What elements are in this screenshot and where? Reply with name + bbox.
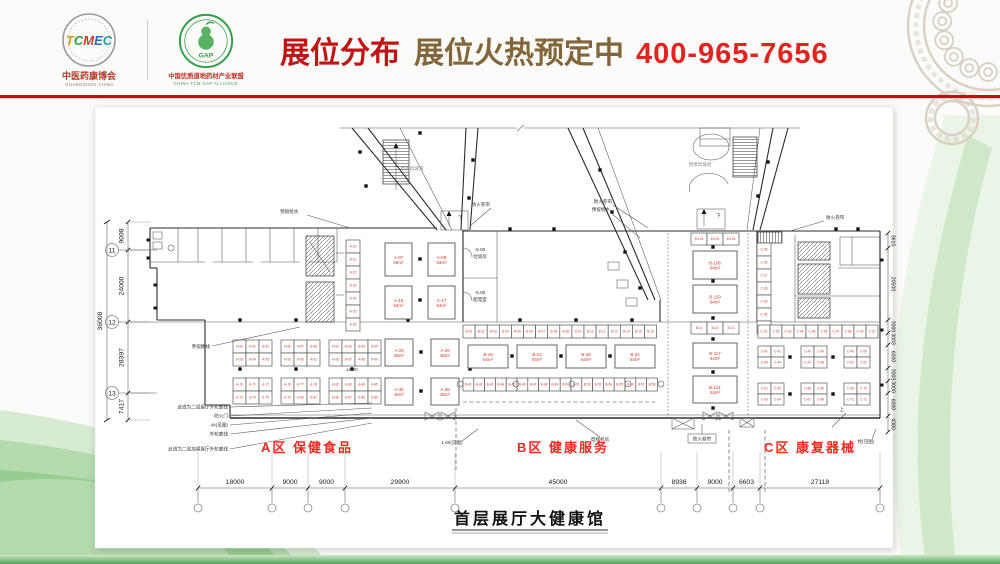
svg-text:A-69: A-69 xyxy=(371,358,378,362)
svg-text:B-11: B-11 xyxy=(696,326,703,330)
svg-text:C-62: C-62 xyxy=(774,387,781,391)
svg-text:-5.00: -5.00 xyxy=(475,290,486,295)
svg-text:11: 11 xyxy=(108,247,115,254)
svg-text:12: 12 xyxy=(108,319,116,326)
svg-text:A-66: A-66 xyxy=(332,358,339,362)
header-rule-shadow xyxy=(0,98,1000,99)
svg-text:B-43: B-43 xyxy=(487,383,494,387)
svg-text:A-82: A-82 xyxy=(332,383,339,387)
svg-text:A-57: A-57 xyxy=(297,345,304,349)
svg-text:C-10: C-10 xyxy=(869,330,876,334)
svg-text:28397: 28397 xyxy=(119,348,126,367)
svg-text:B-11: B-11 xyxy=(587,330,594,334)
svg-text:6000: 6000 xyxy=(890,351,896,363)
svg-text:C-72: C-72 xyxy=(860,398,867,402)
svg-text:防火卷帘: 防火卷帘 xyxy=(472,201,491,208)
svg-text:C-04: C-04 xyxy=(797,330,804,334)
svg-text:A-85: A-85 xyxy=(371,383,378,387)
svg-text:B-13: B-13 xyxy=(611,330,618,334)
svg-text:C-63: C-63 xyxy=(761,398,768,402)
svg-text:B-02: B-02 xyxy=(478,330,485,334)
svg-text:C-25: C-25 xyxy=(761,248,768,252)
logo-tcmec-name: 中医药康博会 xyxy=(62,69,116,82)
header-titles: 展位分布 展位火热预定中 400-965-7656 xyxy=(280,28,829,72)
svg-text:A-23: A-23 xyxy=(350,284,357,288)
svg-text:84m²: 84m² xyxy=(710,266,721,271)
svg-text:B-50: B-50 xyxy=(562,383,569,387)
svg-text:A-22: A-22 xyxy=(350,271,357,275)
svg-text:A-52: A-52 xyxy=(262,345,269,349)
svg-text:B-41: B-41 xyxy=(465,383,472,387)
svg-text:A-60: A-60 xyxy=(297,358,304,362)
svg-text:27118: 27118 xyxy=(811,479,830,486)
svg-text:A-73: A-73 xyxy=(236,396,243,400)
svg-text:A-81: A-81 xyxy=(310,396,317,400)
svg-text:±0.00: ±0.00 xyxy=(346,367,358,372)
svg-text:A-68: A-68 xyxy=(358,358,365,362)
svg-text:C-26: C-26 xyxy=(761,261,768,265)
page-title: 展位分布 xyxy=(280,28,400,72)
svg-text:B-05: B-05 xyxy=(514,330,521,334)
svg-text:A-67: A-67 xyxy=(345,358,352,362)
svg-text:A-79: A-79 xyxy=(284,396,291,400)
svg-text:36m²: 36m² xyxy=(394,392,405,397)
logo-gap-sub: CHINA TCM GAP ALLIANCE xyxy=(174,81,238,86)
svg-text:GAP: GAP xyxy=(199,52,214,59)
svg-text:3610: 3610 xyxy=(890,235,896,247)
svg-text:9098: 9098 xyxy=(119,228,126,243)
svg-text:A-56: A-56 xyxy=(284,345,291,349)
header: TCMEC 中医药康博会 GUANGZHOU CHINA GAP 中国优质道地药… xyxy=(0,0,1000,95)
svg-text:参观路线: 参观路线 xyxy=(192,343,211,350)
svg-text:预留给水: 预留给水 xyxy=(592,206,611,213)
svg-text:7417: 7417 xyxy=(119,399,126,414)
svg-text:B-06: B-06 xyxy=(526,330,533,334)
svg-text:垃圾房: 垃圾房 xyxy=(473,253,487,260)
svg-text:原建筑坡道: 原建筑坡道 xyxy=(401,165,424,172)
svg-text:6603: 6603 xyxy=(739,479,754,486)
svg-text:A-89: A-89 xyxy=(371,396,378,400)
svg-text:36000: 36000 xyxy=(97,311,104,330)
svg-text:4380: 4380 xyxy=(890,418,896,430)
svg-text:栓(见图): 栓(见图) xyxy=(858,438,875,445)
svg-text:-5.00: -5.00 xyxy=(475,247,486,252)
svg-text:A-24: A-24 xyxy=(350,297,357,301)
svg-text:84m²: 84m² xyxy=(710,300,721,305)
svg-text:C-05: C-05 xyxy=(809,330,816,334)
svg-text:A-65: A-65 xyxy=(371,345,378,349)
svg-text:外轮廓线: 外轮廓线 xyxy=(210,431,229,438)
svg-text:C-65: C-65 xyxy=(804,387,811,391)
zone-b-label: B区 健康服务 xyxy=(517,440,609,455)
plan-title: 首层展厅大健康馆 xyxy=(454,509,606,528)
svg-text:6000: 6000 xyxy=(890,399,896,411)
gap-logo-icon: GAP xyxy=(177,12,235,70)
svg-text:C-45: C-45 xyxy=(804,350,811,354)
svg-text:B-03: B-03 xyxy=(490,330,497,334)
svg-text:C-02: C-02 xyxy=(773,330,780,334)
svg-text:54m²: 54m² xyxy=(710,356,721,361)
svg-text:C-30: C-30 xyxy=(761,313,768,317)
svg-text:B-09: B-09 xyxy=(562,330,569,334)
svg-text:A-88: A-88 xyxy=(358,396,365,400)
svg-text:A-80: A-80 xyxy=(297,396,304,400)
svg-text:B-102: B-102 xyxy=(711,237,720,241)
svg-text:A-76: A-76 xyxy=(284,383,291,387)
svg-text:C-29: C-29 xyxy=(761,300,768,304)
svg-text:B-46: B-46 xyxy=(519,383,526,387)
svg-text:防火卷帘: 防火卷帘 xyxy=(594,198,613,205)
svg-text:A-61: A-61 xyxy=(310,358,317,362)
svg-text:A-25: A-25 xyxy=(350,310,357,314)
svg-text:13: 13 xyxy=(108,390,116,397)
svg-text:A-71: A-71 xyxy=(249,383,256,387)
svg-text:C-43: C-43 xyxy=(761,361,768,365)
svg-text:A-58: A-58 xyxy=(310,345,317,349)
svg-text:A-20: A-20 xyxy=(350,245,357,249)
zone-c-label: C区 康复器械 xyxy=(764,440,856,455)
svg-text:9000: 9000 xyxy=(282,479,297,486)
svg-text:B-07: B-07 xyxy=(538,330,545,334)
svg-text:C-27: C-27 xyxy=(761,274,768,278)
svg-text:B-12: B-12 xyxy=(599,330,606,334)
svg-text:A-62: A-62 xyxy=(332,345,339,349)
svg-text:3003: 3003 xyxy=(890,369,896,381)
svg-text:TCMEC: TCMEC xyxy=(66,33,113,48)
svg-text:C-46: C-46 xyxy=(817,350,824,354)
svg-text:B-52: B-52 xyxy=(584,383,591,387)
svg-text:B-44: B-44 xyxy=(497,383,504,387)
svg-text:C-28: C-28 xyxy=(761,287,768,291)
svg-text:A-86: A-86 xyxy=(332,396,339,400)
svg-text:A-50: A-50 xyxy=(236,345,243,349)
svg-text:24000: 24000 xyxy=(119,276,126,295)
svg-text:B-13: B-13 xyxy=(728,326,735,330)
slide: TCMEC 中医药康博会 GUANGZHOU CHINA GAP 中国优质道地药… xyxy=(0,0,1000,564)
svg-text:防火卷帘: 防火卷帘 xyxy=(693,436,712,443)
svg-text:防火门: 防火门 xyxy=(214,413,228,420)
svg-text:C-64: C-64 xyxy=(774,398,781,402)
svg-text:此线为二层展厅外轮廓线: 此线为二层展厅外轮廓线 xyxy=(177,404,228,411)
svg-text:45000: 45000 xyxy=(549,479,568,486)
svg-text:B-54: B-54 xyxy=(605,383,612,387)
svg-text:A-64: A-64 xyxy=(358,345,365,349)
svg-text:B-103: B-103 xyxy=(727,237,736,241)
svg-text:54m²: 54m² xyxy=(532,357,543,362)
svg-text:B-53: B-53 xyxy=(595,383,602,387)
svg-text:B-42: B-42 xyxy=(476,383,483,387)
svg-text:54m²: 54m² xyxy=(710,390,721,395)
svg-text:C-07: C-07 xyxy=(833,330,840,334)
svg-text:B-101: B-101 xyxy=(695,237,704,241)
svg-text:C-01: C-01 xyxy=(761,330,768,334)
svg-text:A-59: A-59 xyxy=(284,358,291,362)
svg-text:B-14: B-14 xyxy=(623,330,630,334)
svg-text:C-67: C-67 xyxy=(804,398,811,402)
svg-text:配电室: 配电室 xyxy=(473,296,487,303)
svg-text:B-57: B-57 xyxy=(638,383,645,387)
svg-text:3000: 3000 xyxy=(890,321,896,333)
svg-text:C-48: C-48 xyxy=(817,361,824,365)
svg-text:B-04: B-04 xyxy=(502,330,509,334)
svg-text:C-61: C-61 xyxy=(761,387,768,391)
svg-text:29900: 29900 xyxy=(391,479,410,486)
svg-text:B-16: B-16 xyxy=(647,330,654,334)
svg-text:B-10: B-10 xyxy=(575,330,582,334)
svg-text:B-47: B-47 xyxy=(530,383,537,387)
svg-text:A-84: A-84 xyxy=(358,383,365,387)
logo-gap: GAP 中国优质道地药材产业联盟 CHINA TCM GAP ALLIANCE xyxy=(162,12,250,87)
svg-text:A-53: A-53 xyxy=(236,358,243,362)
logo-tcmec-sub: GUANGZHOU CHINA xyxy=(65,82,113,87)
svg-text:54m²: 54m² xyxy=(483,357,494,362)
svg-text:C-09: C-09 xyxy=(857,330,864,334)
svg-text:A-21: A-21 xyxy=(350,258,357,262)
svg-text:20500: 20500 xyxy=(890,277,896,292)
svg-text:3000: 3000 xyxy=(890,381,896,393)
svg-text:原建筑坡道: 原建筑坡道 xyxy=(689,161,712,168)
svg-text:B-01: B-01 xyxy=(466,330,473,334)
svg-text:A-78: A-78 xyxy=(310,383,317,387)
svg-text:9000: 9000 xyxy=(707,479,722,486)
svg-text:C-41: C-41 xyxy=(761,350,768,354)
svg-text:上: 上 xyxy=(840,406,845,412)
svg-text:A-26: A-26 xyxy=(350,323,357,327)
svg-text:C-44: C-44 xyxy=(774,361,781,365)
svg-text:A-54: A-54 xyxy=(249,358,256,362)
svg-text:36m²: 36m² xyxy=(440,353,451,358)
svg-text:C-42: C-42 xyxy=(774,350,781,354)
svg-text:C-03: C-03 xyxy=(785,330,792,334)
svg-text:C-71: C-71 xyxy=(847,398,854,402)
svg-text:36m²: 36m² xyxy=(394,353,405,358)
zone-a-label: A区 保健食品 xyxy=(261,440,353,455)
svg-text:预留给水: 预留给水 xyxy=(280,208,299,215)
svg-text:A-72: A-72 xyxy=(262,383,269,387)
svg-text:8936: 8936 xyxy=(671,479,686,486)
svg-text:C-66: C-66 xyxy=(817,387,824,391)
page-subtitle: 展位火热预定中 xyxy=(414,28,624,72)
svg-text:此线为二层加建展厅外轮廓线: 此线为二层加建展厅外轮廓线 xyxy=(168,446,228,453)
svg-text:B-15: B-15 xyxy=(635,330,642,334)
svg-text:B-55: B-55 xyxy=(616,383,623,387)
svg-text:B-58: B-58 xyxy=(649,383,656,387)
svg-text:C-52: C-52 xyxy=(860,361,867,365)
svg-text:A-70: A-70 xyxy=(236,383,243,387)
svg-text:C-69: C-69 xyxy=(847,387,854,391)
svg-text:3003: 3003 xyxy=(890,333,896,345)
svg-text:防火卷帘: 防火卷帘 xyxy=(826,214,845,221)
svg-text:63m²: 63m² xyxy=(436,260,447,265)
svg-text:C-68: C-68 xyxy=(817,398,824,402)
bottom-green-bar xyxy=(0,555,1000,564)
zone-labels: A区 保健食品 B区 健康服务 C区 康复器械 xyxy=(261,440,856,455)
logo-tcmec: TCMEC 中医药康博会 GUANGZHOU CHINA xyxy=(45,12,133,88)
svg-text:B-49: B-49 xyxy=(551,383,558,387)
svg-text:A-75: A-75 xyxy=(262,396,269,400)
svg-text:B-08: B-08 xyxy=(550,330,557,334)
logo-gap-name: 中国优质道地药材产业联盟 xyxy=(168,72,244,81)
svg-text:A-55: A-55 xyxy=(262,358,269,362)
svg-text:C-51: C-51 xyxy=(847,361,854,365)
svg-text:54m²: 54m² xyxy=(436,303,447,308)
svg-text:A-63: A-63 xyxy=(345,345,352,349)
svg-text:C-08: C-08 xyxy=(845,330,852,334)
svg-text:63m²: 63m² xyxy=(393,260,404,265)
svg-text:18000: 18000 xyxy=(226,479,245,486)
svg-text:A-87: A-87 xyxy=(345,396,352,400)
svg-text:B-12: B-12 xyxy=(712,326,719,330)
svg-text:54m²: 54m² xyxy=(581,357,592,362)
svg-text:54m²: 54m² xyxy=(393,303,404,308)
svg-text:A-74: A-74 xyxy=(249,396,256,400)
svg-text:C-47: C-47 xyxy=(804,361,811,365)
svg-text:A-51: A-51 xyxy=(249,345,256,349)
svg-text:9000: 9000 xyxy=(319,479,334,486)
tcmec-logo-icon: TCMEC xyxy=(61,12,117,68)
svg-text:A-83: A-83 xyxy=(345,383,352,387)
svg-text:B-48: B-48 xyxy=(541,383,548,387)
svg-text:36m²: 36m² xyxy=(440,392,451,397)
svg-text:54m²: 54m² xyxy=(630,357,641,362)
svg-text:C-06: C-06 xyxy=(821,330,828,334)
svg-text:A-77: A-77 xyxy=(297,383,304,387)
svg-text:C-50: C-50 xyxy=(860,350,867,354)
svg-text:C-70: C-70 xyxy=(860,387,867,391)
header-divider xyxy=(147,20,148,80)
phone-number: 400-965-7656 xyxy=(636,38,829,71)
svg-text:C-49: C-49 xyxy=(847,350,854,354)
